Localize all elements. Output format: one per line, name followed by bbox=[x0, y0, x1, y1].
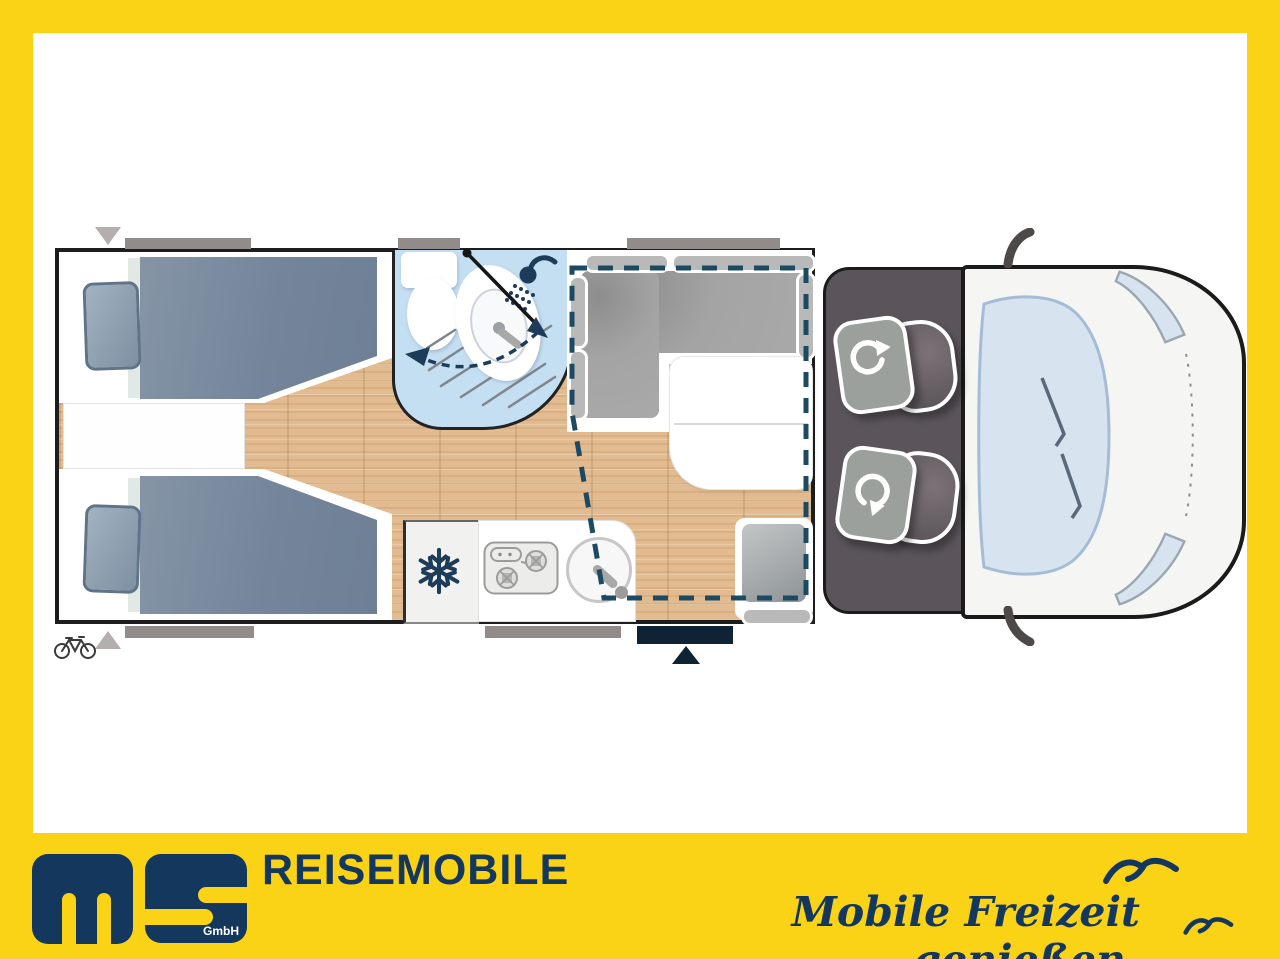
seagull-icon-small bbox=[1183, 913, 1235, 939]
logo-s-notch-left bbox=[145, 909, 213, 925]
brand-slogan: Mobile Freizeit genießen. bbox=[600, 888, 1140, 959]
between-beds-step bbox=[63, 403, 245, 469]
mirror-bottom bbox=[1002, 606, 1036, 646]
side-seat-headrest bbox=[741, 607, 813, 626]
side-window-bed bbox=[125, 626, 254, 638]
logo-letter-m bbox=[32, 854, 133, 944]
pillow-top-bed bbox=[82, 281, 141, 371]
entry-arrow-icon bbox=[672, 646, 700, 664]
bicycle-icon bbox=[53, 630, 97, 660]
side-window-kitchen bbox=[485, 626, 621, 638]
stove bbox=[483, 541, 559, 595]
rotation-arrow-icon bbox=[846, 338, 890, 382]
roof-window-bed bbox=[125, 238, 251, 249]
snowflake-icon bbox=[414, 546, 464, 596]
seagull-icon bbox=[1102, 853, 1182, 889]
logo-m-slot-2 bbox=[97, 893, 111, 944]
screenshot-root: GmbH REISEMOBILE Mobile Freizeit genieße… bbox=[0, 0, 1280, 959]
roof-window-dinette bbox=[627, 238, 780, 249]
logo-m-slot-1 bbox=[62, 893, 76, 944]
mirror-top bbox=[1002, 228, 1036, 268]
headlight-bottom bbox=[1110, 530, 1194, 610]
headlight-top bbox=[1110, 266, 1194, 346]
logo-letter-s: GmbH bbox=[145, 854, 247, 943]
marker-triangle-top bbox=[95, 227, 121, 245]
brand-wordmark: REISEMOBILE bbox=[262, 846, 569, 895]
bathroom-door-swing bbox=[390, 246, 576, 382]
windshield bbox=[970, 288, 1122, 584]
pillow-bottom-bed bbox=[82, 504, 141, 594]
entry-door bbox=[637, 626, 733, 644]
roof-window-bathroom bbox=[398, 238, 460, 249]
drop-down-bed-outline bbox=[565, 260, 815, 605]
hood-seam-dashed bbox=[1176, 350, 1202, 520]
logo-gmbh-label: GmbH bbox=[197, 924, 245, 938]
logo-s-notch-right bbox=[198, 887, 247, 903]
marker-triangle-bottom bbox=[95, 631, 121, 649]
